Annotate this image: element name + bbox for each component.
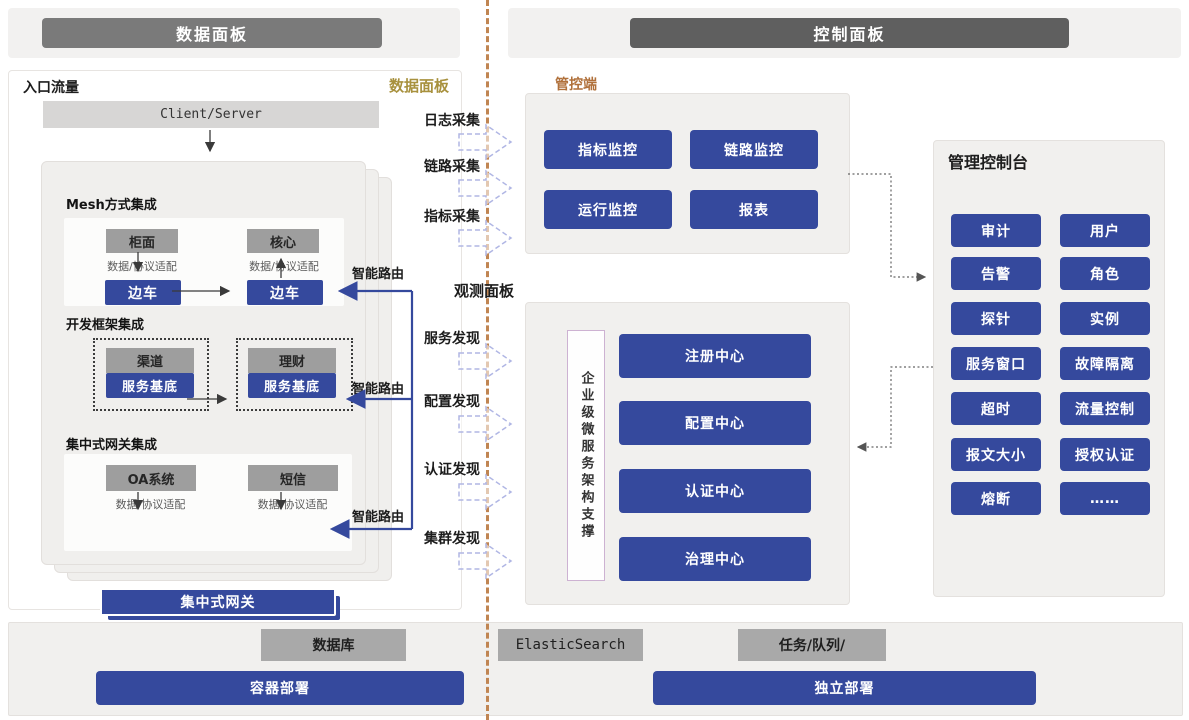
console-button-circuit-breaker: 熔断: [951, 482, 1041, 515]
center-registry: 注册中心: [619, 334, 811, 378]
management-console-panel: 管理控制台 审计 用户 告警 角色 探针 实例 服务窗口 故障隔离 超时 流量控…: [933, 140, 1165, 597]
console-button-timeout: 超时: [951, 392, 1041, 425]
framework-node-wealth: 理财: [248, 348, 336, 373]
flow-label-service-discovery: 服务发现: [420, 328, 480, 348]
infra-task-queue: 任务/队列/: [738, 629, 886, 661]
console-button-fault-isolation: 故障隔离: [1060, 347, 1150, 380]
control-panel-header-container: 控制面板: [508, 8, 1181, 58]
block-arrow-config-discovery: [459, 407, 511, 441]
infra-database: 数据库: [261, 629, 406, 661]
mesh-sidecar-right: 边车: [247, 280, 323, 305]
flow-label-config-discovery: 配置发现: [420, 391, 480, 411]
control-panel-header-label: 控制面板: [813, 21, 885, 45]
block-arrow-log-collect: [459, 125, 511, 159]
center-config: 配置中心: [619, 401, 811, 445]
gateway-node-oa: OA系统: [106, 465, 196, 491]
entry-traffic-label: 入口流量: [23, 77, 79, 97]
flow-label-auth-discovery: 认证发现: [420, 459, 480, 479]
mgmt-panel-label: 管控端: [555, 74, 597, 94]
console-button-alert: 告警: [951, 257, 1041, 290]
framework-base-left: 服务基底: [106, 373, 194, 398]
console-button-service-window: 服务窗口: [951, 347, 1041, 380]
gateway-section-title: 集中式网关集成: [66, 434, 157, 453]
architecture-diagram: { "headers": { "left": "数据面板", "right": …: [0, 0, 1189, 720]
deploy-standalone: 独立部署: [653, 671, 1036, 705]
framework-section-title: 开发框架集成: [66, 314, 144, 333]
data-panel-header-label: 数据面板: [176, 21, 248, 45]
console-button-message-size: 报文大小: [951, 438, 1041, 471]
microservice-support-label: 企业级微服务架构支撑: [567, 330, 605, 581]
console-button-authorization: 授权认证: [1060, 438, 1150, 471]
console-button-probe: 探针: [951, 302, 1041, 335]
console-button-traffic-control: 流量控制: [1060, 392, 1150, 425]
mesh-adapter-label-left: 数据/协议适配: [92, 258, 192, 274]
control-panel-header: 控制面板: [630, 18, 1069, 48]
gateway-bar: 集中式网关: [100, 588, 336, 616]
flow-label-metric-collect: 指标采集: [420, 206, 480, 226]
dotted-connectors: [848, 174, 933, 447]
block-arrow-trace-collect: [459, 171, 511, 205]
panel-divider-line: [486, 0, 489, 720]
client-server-node: Client/Server: [43, 101, 379, 128]
block-arrow-service-discovery: [459, 344, 511, 378]
integration-panel: Mesh方式集成 柜面 核心 数据/协议适配 数据/协议适配 边车 边车 开发框…: [41, 161, 366, 565]
smart-route-label-2: 智能路由: [352, 378, 404, 397]
mesh-adapter-label-right: 数据/协议适配: [234, 258, 334, 274]
connector-mgmt-to-console: [848, 174, 925, 277]
framework-base-right: 服务基底: [248, 373, 336, 398]
flow-label-cluster-discovery: 集群发现: [420, 528, 480, 548]
data-panel-header: 数据面板: [42, 18, 382, 48]
gateway-adapter-label-right: 数据/协议适配: [240, 496, 345, 512]
mgmt-button-metric-monitor: 指标监控: [544, 130, 672, 169]
connector-console-to-observation: [858, 367, 933, 447]
mesh-node-teller: 柜面: [106, 229, 178, 253]
flow-block-arrows: [459, 125, 511, 578]
data-panel-header-container: 数据面板: [8, 8, 460, 58]
mesh-sidecar-left: 边车: [105, 280, 181, 305]
center-auth: 认证中心: [619, 469, 811, 513]
console-button-role: 角色: [1060, 257, 1150, 290]
block-arrow-auth-discovery: [459, 475, 511, 509]
deploy-container: 容器部署: [96, 671, 464, 705]
block-arrow-metric-collect: [459, 221, 511, 255]
observation-panel: 企业级微服务架构支撑 注册中心 配置中心 认证中心 治理中心: [525, 302, 850, 605]
flow-label-trace-collect: 链路采集: [420, 156, 480, 176]
gateway-adapter-label-left: 数据/协议适配: [98, 496, 203, 512]
flow-label-log-collect: 日志采集: [420, 110, 480, 130]
console-button-more: ……: [1060, 482, 1150, 515]
observe-panel-title: 观测面板: [454, 280, 514, 301]
block-arrow-cluster-discovery: [459, 544, 511, 578]
smart-route-label-3: 智能路由: [352, 506, 404, 525]
mesh-node-core: 核心: [247, 229, 319, 253]
infra-elasticsearch: ElasticSearch: [498, 629, 643, 661]
infrastructure-strip: 数据库 ElasticSearch 任务/队列/ 容器部署 独立部署: [8, 622, 1183, 716]
data-panel-body: 入口流量 数据面板 Client/Server Mesh方式集成 柜面 核心 数…: [8, 70, 462, 610]
console-button-instance: 实例: [1060, 302, 1150, 335]
mgmt-button-runtime-monitor: 运行监控: [544, 190, 672, 229]
mesh-section-title: Mesh方式集成: [66, 194, 157, 213]
gateway-node-sms: 短信: [248, 465, 338, 491]
smart-route-label-1: 智能路由: [352, 263, 404, 282]
management-console-title: 管理控制台: [948, 149, 1028, 173]
console-button-audit: 审计: [951, 214, 1041, 247]
framework-node-channel: 渠道: [106, 348, 194, 373]
center-governance: 治理中心: [619, 537, 811, 581]
data-panel-corner-label: 数据面板: [389, 75, 449, 96]
console-button-user: 用户: [1060, 214, 1150, 247]
mgmt-button-trace-monitor: 链路监控: [690, 130, 818, 169]
mgmt-button-report: 报表: [690, 190, 818, 229]
mgmt-panel: 指标监控 链路监控 运行监控 报表: [525, 93, 850, 254]
